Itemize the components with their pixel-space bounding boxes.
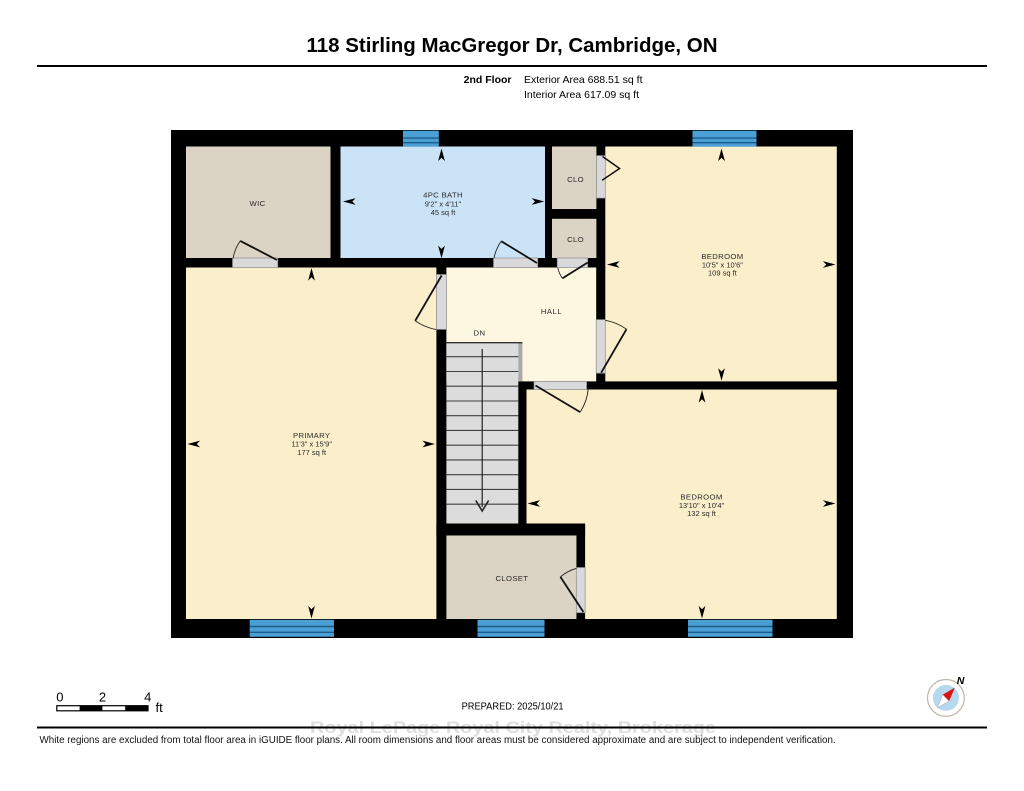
svg-text:ft: ft (156, 700, 164, 715)
svg-text:WIC: WIC (250, 199, 266, 208)
svg-text:HALL: HALL (541, 307, 562, 316)
svg-text:2nd Floor: 2nd Floor (464, 74, 512, 86)
svg-text:CLO: CLO (567, 175, 584, 184)
svg-text:BEDROOM: BEDROOM (680, 492, 722, 501)
svg-text:Exterior Area 688.51 sq ft: Exterior Area 688.51 sq ft (524, 74, 643, 86)
svg-text:CLO: CLO (567, 235, 584, 244)
svg-text:109 sq ft: 109 sq ft (708, 269, 738, 278)
svg-text:PREPARED: 2025/10/21: PREPARED: 2025/10/21 (462, 702, 564, 713)
svg-text:CLOSET: CLOSET (495, 574, 528, 583)
svg-text:2: 2 (99, 690, 106, 705)
svg-text:0: 0 (56, 690, 63, 705)
svg-text:White regions are excluded fro: White regions are excluded from total fl… (40, 735, 836, 746)
svg-text:4: 4 (144, 690, 151, 705)
svg-text:177 sq ft: 177 sq ft (297, 448, 327, 457)
svg-text:4PC BATH: 4PC BATH (423, 191, 463, 200)
svg-text:118 Stirling MacGregor Dr, Cam: 118 Stirling MacGregor Dr, Cambridge, ON (307, 34, 718, 57)
svg-text:132 sq ft: 132 sq ft (687, 509, 717, 518)
svg-text:DN: DN (474, 329, 486, 338)
svg-text:45 sq ft: 45 sq ft (431, 208, 457, 217)
svg-text:Interior Area 617.09 sq ft: Interior Area 617.09 sq ft (524, 89, 639, 101)
svg-text:N: N (957, 675, 965, 687)
